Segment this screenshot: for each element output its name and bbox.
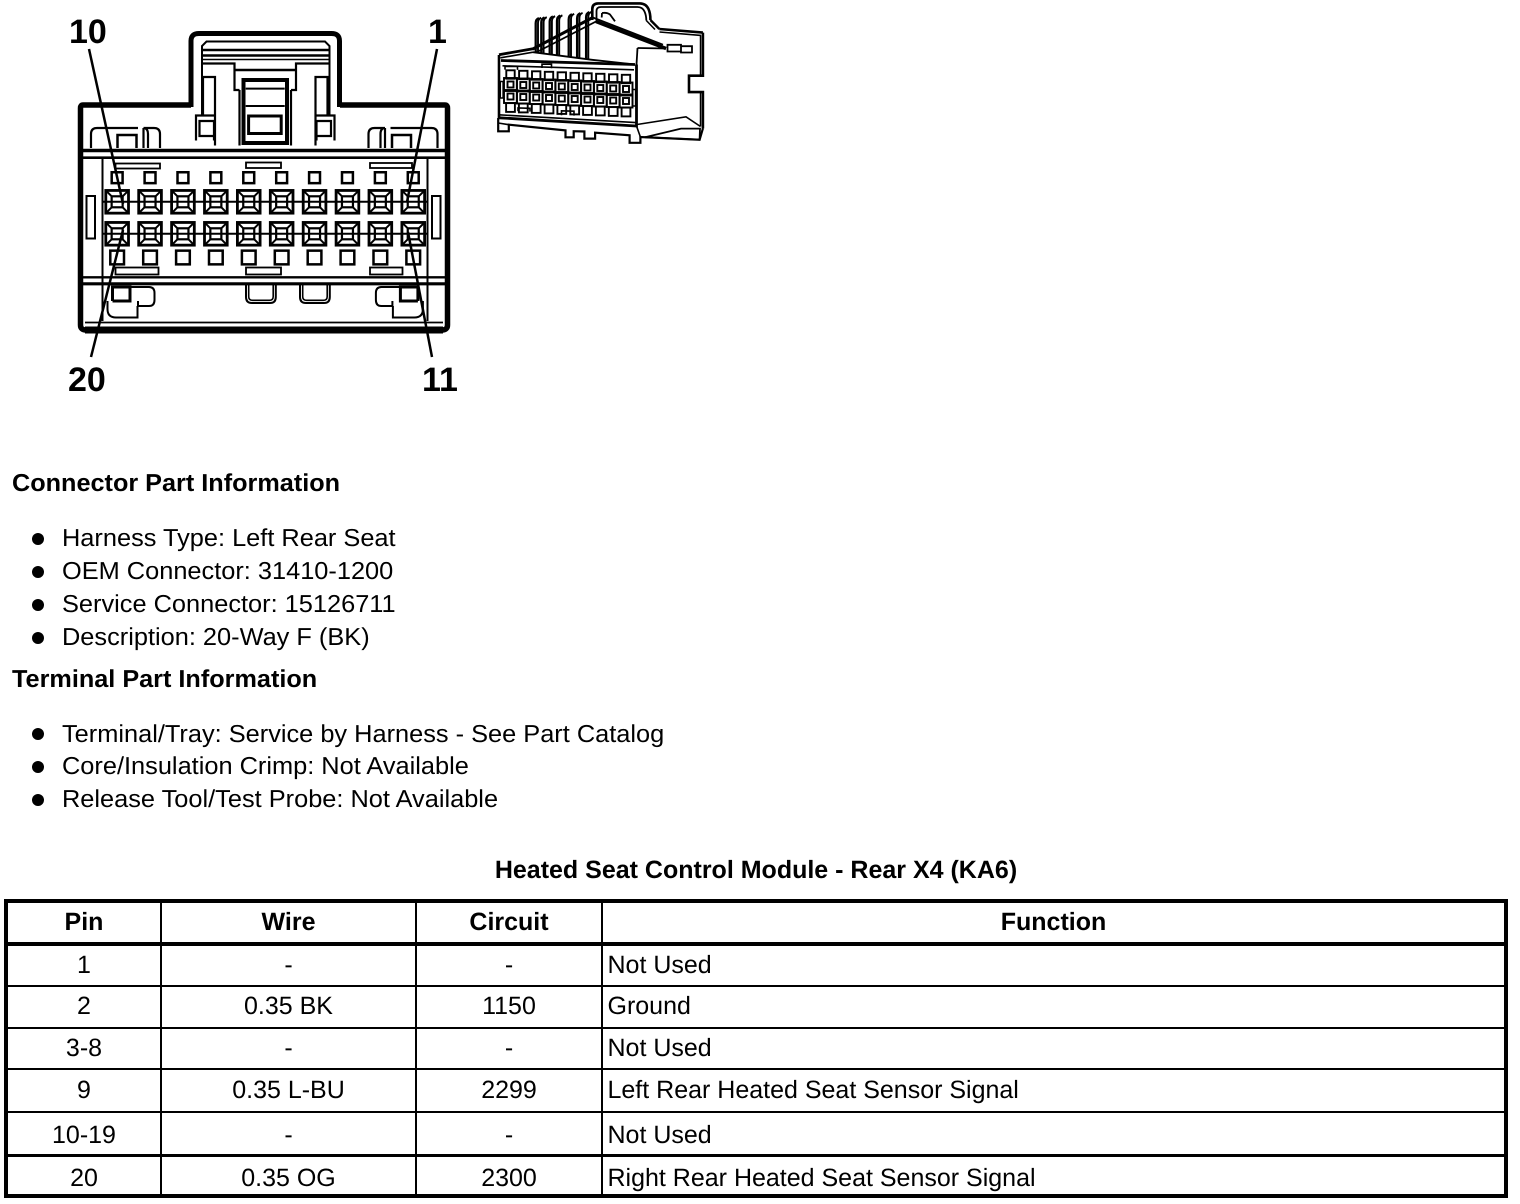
svg-text:11: 11 (422, 361, 458, 399)
svg-text:20: 20 (68, 361, 106, 399)
svg-text:10: 10 (69, 13, 107, 51)
svg-text:1: 1 (428, 13, 447, 51)
